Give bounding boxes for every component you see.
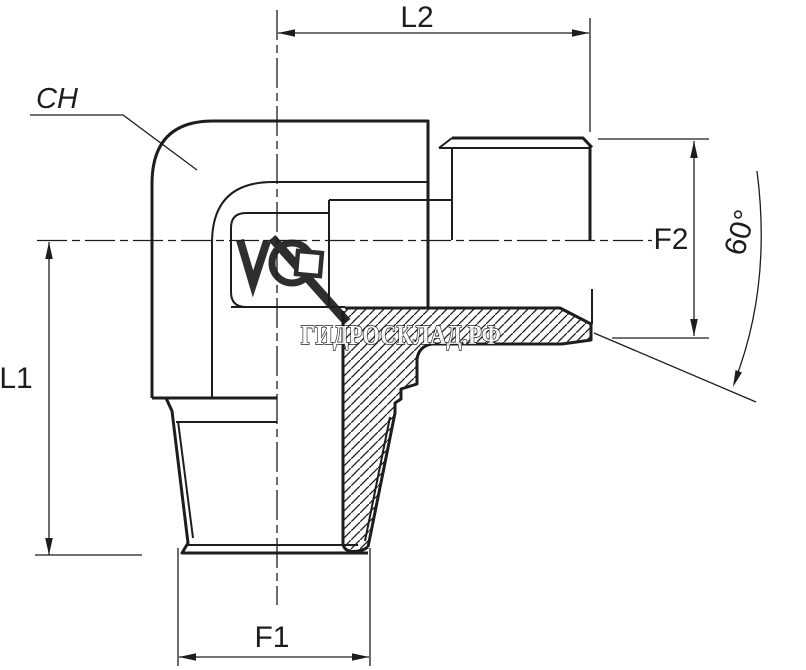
label-l2: L2 <box>400 1 433 34</box>
elbow-fitting-drawing: L2 L1 F1 F2 60° CH ГИДРОСКЛАД.РФ <box>0 0 806 670</box>
technical-drawing-canvas: L2 L1 F1 F2 60° CH ГИДРОСКЛАД.РФ <box>0 0 806 670</box>
label-f2: F2 <box>653 223 688 256</box>
label-wrench-size: CH <box>36 83 78 115</box>
logo-square <box>296 251 322 276</box>
watermark-text: ГИДРОСКЛАД.РФ <box>301 320 501 350</box>
label-f1: F1 <box>254 621 289 654</box>
label-l1: L1 <box>0 362 33 395</box>
